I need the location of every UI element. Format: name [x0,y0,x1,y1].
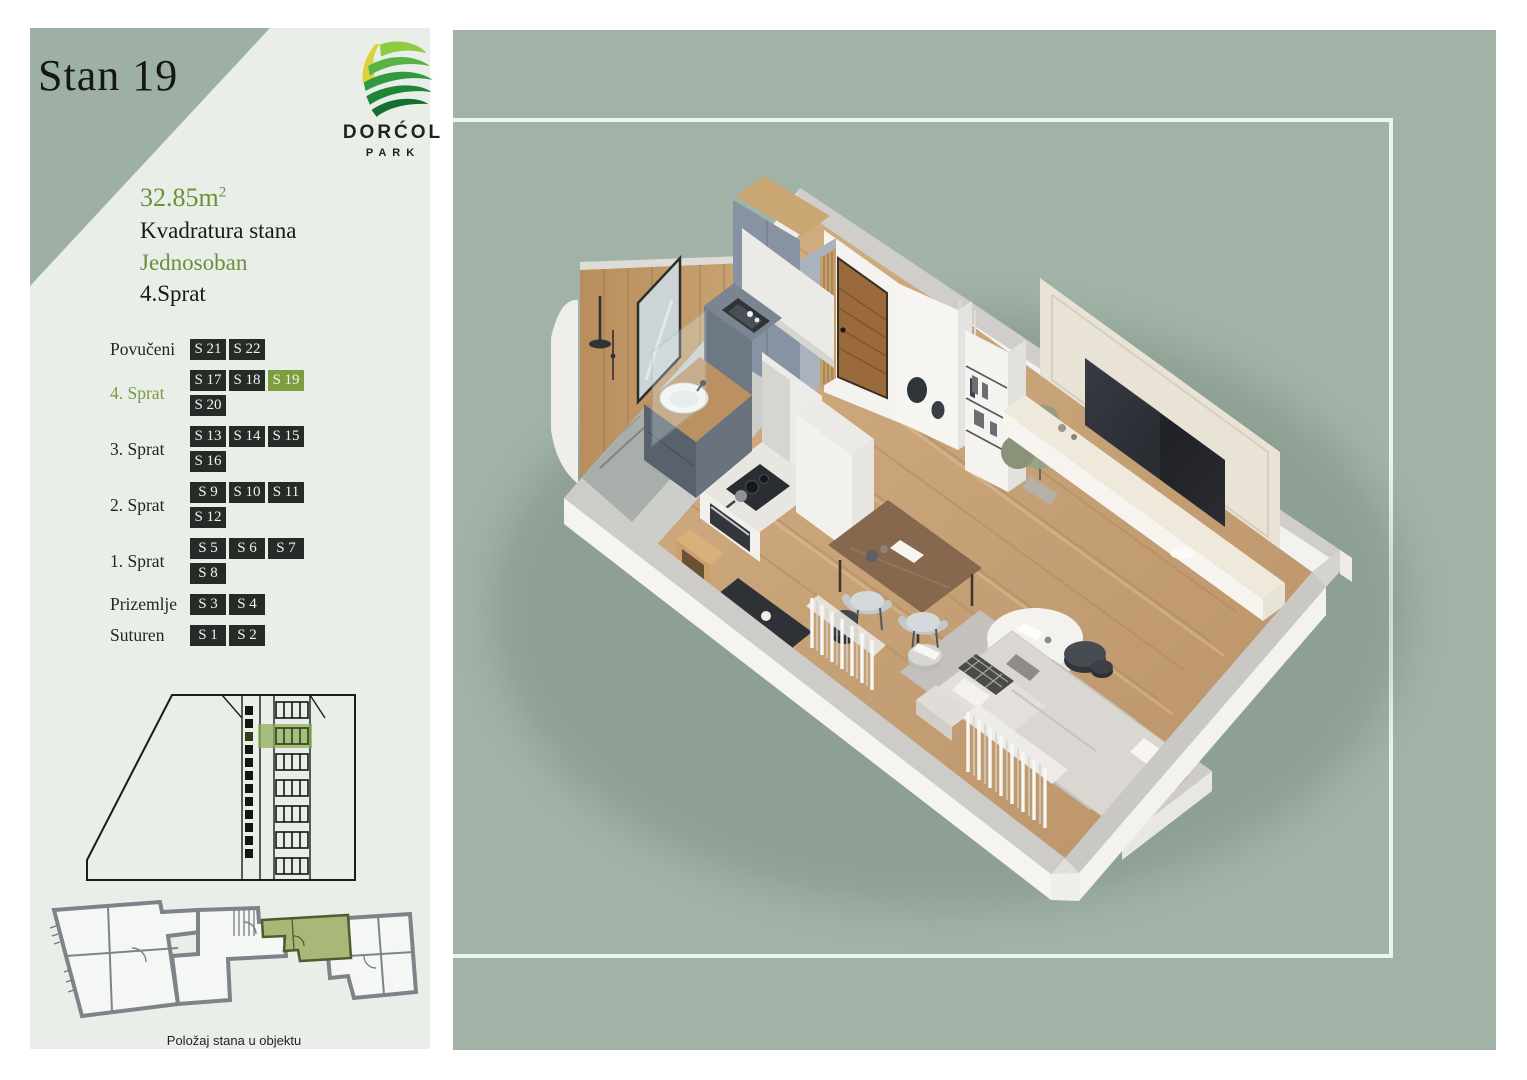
unit-chip-group: S 1S 2 [190,625,310,646]
brand-name: DORĆOL [338,122,448,144]
unit-area-label: Kvadratura stana [140,215,296,246]
unit-chip[interactable]: S 16 [190,451,226,472]
render-panel [453,30,1496,1050]
unit-chip-group: S 9S 10S 11S 12 [190,482,310,528]
plan-caption: Položaj stana u objektu [48,1033,420,1048]
floor-label: 4. Sprat [110,383,190,404]
floor-label: Prizemlje [110,594,190,615]
floor-label: 2. Sprat [110,495,190,516]
unit-type: Jednosoban [140,247,296,278]
unit-chip-group: S 17S 18S 19S 20 [190,370,310,416]
unit-chip[interactable]: S 11 [268,482,304,503]
unit-chip[interactable]: S 4 [229,594,265,615]
unit-chip[interactable]: S 14 [229,426,265,447]
floor-row: PovučeniS 21S 22 [110,339,350,360]
brand-logo: DORĆOL PARK [338,40,448,159]
floor-row: 1. SpratS 5S 6S 7S 8 [110,538,350,584]
unit-floor: 4.Sprat [140,278,296,309]
unit-chip-group: S 21S 22 [190,339,310,360]
unit-chip[interactable]: S 3 [190,594,226,615]
floor-row: PrizemljeS 3S 4 [110,594,350,615]
unit-chip[interactable]: S 13 [190,426,226,447]
page-title: Stan 19 [38,50,178,101]
unit-chip[interactable]: S 19 [268,370,304,391]
building-cross-section [62,688,374,888]
unit-chip[interactable]: S 12 [190,507,226,528]
unit-chip[interactable]: S 21 [190,339,226,360]
unit-chip-group: S 13S 14S 15S 16 [190,426,310,472]
unit-chip-group: S 5S 6S 7S 8 [190,538,310,584]
floor-row: 4. SpratS 17S 18S 19S 20 [110,370,350,416]
floor-label: 1. Sprat [110,551,190,572]
floor-row: 3. SpratS 13S 14S 15S 16 [110,426,350,472]
leaf-logo-icon [350,40,436,118]
floor-label: Povučeni [110,339,190,360]
shower-head [589,340,611,349]
unit-chip[interactable]: S 6 [229,538,265,559]
unit-chip[interactable]: S 7 [268,538,304,559]
brand-subname: PARK [338,147,448,159]
unit-chip[interactable]: S 8 [190,563,226,584]
unit-chip[interactable]: S 10 [229,482,265,503]
floor-label: Suturen [110,625,190,646]
unit-chip[interactable]: S 18 [229,370,265,391]
unit-area: 32.85m2 [140,180,296,215]
floor-row: 2. SpratS 9S 10S 11S 12 [110,482,350,528]
unit-chip[interactable]: S 5 [190,538,226,559]
unit-chip[interactable]: S 15 [268,426,304,447]
unit-chip[interactable]: S 20 [190,395,226,416]
unit-chip-group: S 3S 4 [190,594,310,615]
unit-chip[interactable]: S 9 [190,482,226,503]
unit-chip[interactable]: S 2 [229,625,265,646]
unit-details: 32.85m2 Kvadratura stana Jednosoban 4.Sp… [140,180,296,309]
floor-position-plan [48,896,420,1024]
floor-position-block: Položaj stana u objektu [48,896,420,1048]
floor-row: SuturenS 1S 2 [110,625,350,646]
floor-list: PovučeniS 21S 224. SpratS 17S 18S 19S 20… [110,339,350,656]
unit-sheet-page: Stan 19 DORĆOL PARK 32.85m2 Kvadratura s… [0,0,1527,1080]
apartment-3d-render [453,30,1496,1050]
door-handle [840,327,845,332]
unit-chip[interactable]: S 22 [229,339,265,360]
unit-chip[interactable]: S 1 [190,625,226,646]
unit-chip[interactable]: S 17 [190,370,226,391]
sidebar: Stan 19 DORĆOL PARK 32.85m2 Kvadratura s… [30,28,430,1049]
floor-label: 3. Sprat [110,439,190,460]
